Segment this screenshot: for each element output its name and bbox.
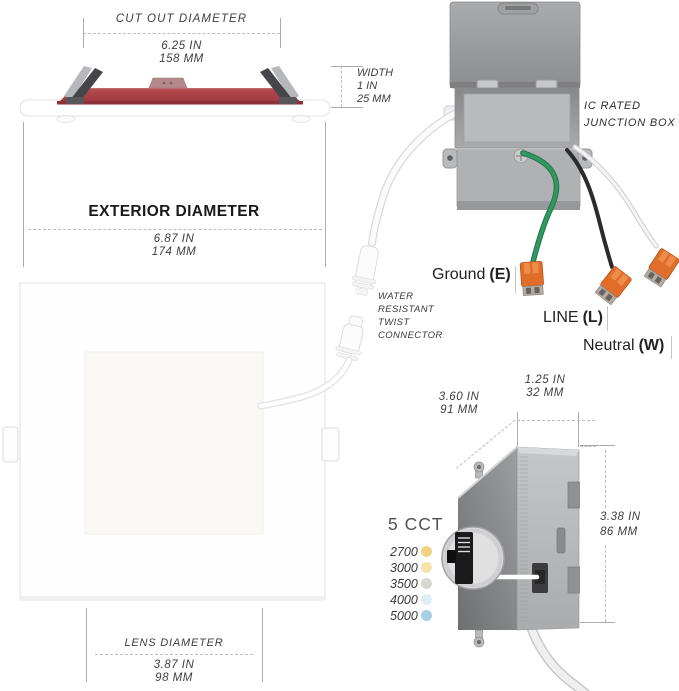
cutout-diameter-mm: 158 MM [83,53,280,65]
lens-dim-line [95,654,253,655]
junction-box-label-line1: IC RATED [584,100,641,112]
mounting-tab-right [322,428,339,461]
width-label: WIDTH [357,67,393,79]
ground-wire-label: Ground(E) [432,266,511,284]
lens-diameter-label: LENS DIAMETER [86,637,262,649]
width-dim-tick-bottom [331,107,363,108]
box-corner-dash [580,446,596,447]
cct-option-3500: 3500 [390,577,418,591]
twist-connector-female [334,314,369,362]
exterior-diameter-inches: 6.87 IN [23,233,325,245]
box-height-dim-line-lower [605,545,606,622]
box-height-tick-bottom [580,622,615,623]
box-height-inches: 3.38 IN [600,511,641,523]
slot [557,528,565,553]
clip-bottom [568,567,580,593]
junction-box-lid [450,2,580,88]
box-depth-inches: 3.60 IN [436,391,482,403]
cct-swatch-3500 [421,578,432,589]
box-width-mm: 32 MM [505,387,585,399]
cct-option-2700: 2700 [390,545,418,559]
cct-option-3000: 3000 [390,561,418,575]
line-wire-label: LINE(L) [543,309,603,327]
box-width-tick-right [578,412,579,447]
exterior-dim-line-right [325,122,326,267]
ground-label-tick [515,266,516,293]
product-illustration [0,0,679,691]
box-width-tick-left [517,412,518,446]
cct-option-4000: 4000 [390,593,418,607]
power-cord [531,627,588,691]
neutral-wire-label: Neutral(W) [583,337,664,355]
product-spec-diagram: CUT OUT DIAMETER 6.25 IN 158 MM WIDTH 1 … [0,0,679,691]
cct-title: 5 CCT [388,514,444,535]
cutout-dim-line [83,33,280,34]
keyhole-tab-bottom [474,630,484,647]
cutout-diameter-label: CUT OUT DIAMETER [83,13,280,25]
cct-option-5000: 5000 [390,609,418,623]
box-width-dim-line [517,420,595,421]
connector-note-line1: WATER [378,291,413,302]
line-label-tick [607,306,608,331]
cct-swatch-2700 [421,546,432,557]
width-dim-line [341,66,342,107]
downlight-side-view [20,66,330,123]
center-mount [149,78,187,88]
connector-note-line4: CONNECTOR [378,330,443,341]
junction-box-label-line2: JUNCTION BOX [584,117,676,129]
exterior-dim-line [28,229,322,230]
lens-diameter-mm: 98 MM [86,672,262,684]
neutral-label-tick [671,336,672,359]
connector-note-line2: RESISTANT [378,304,434,315]
lens-dim-line-right [262,608,263,682]
cct-swatch-4000 [421,594,432,605]
width-inches: 1 IN [357,80,377,92]
box-width-inches: 1.25 IN [505,374,585,386]
cutout-dim-tick-right [280,18,281,48]
junction-box-open [443,2,592,210]
cct-swatch-3000 [421,562,432,573]
exterior-diameter-label: EXTERIOR DIAMETER [23,203,325,221]
exterior-diameter-mm: 174 MM [23,246,325,258]
cutout-diameter-inches: 6.25 IN [83,40,280,52]
wire-connector-line [594,266,632,306]
clip-top [568,482,580,508]
width-mm: 25 MM [357,93,391,105]
lens-diameter-inches: 3.87 IN [86,659,262,671]
wire-connector-ground [520,261,544,295]
box-height-dim-line-upper [605,450,606,508]
cct-switch-magnifier [442,527,504,589]
box-depth-mm: 91 MM [436,404,482,416]
wire-connector-neutral [643,248,679,288]
twist-connector-male [349,244,382,297]
connector-note-line3: TWIST [378,317,410,328]
box-height-tick-top [580,445,615,446]
cct-swatch-5000 [421,610,432,621]
square-panel-front-view [3,283,339,600]
mounting-tab-left [3,427,18,462]
box-height-mm: 86 MM [600,526,638,538]
junction-box-side-view [442,447,588,691]
